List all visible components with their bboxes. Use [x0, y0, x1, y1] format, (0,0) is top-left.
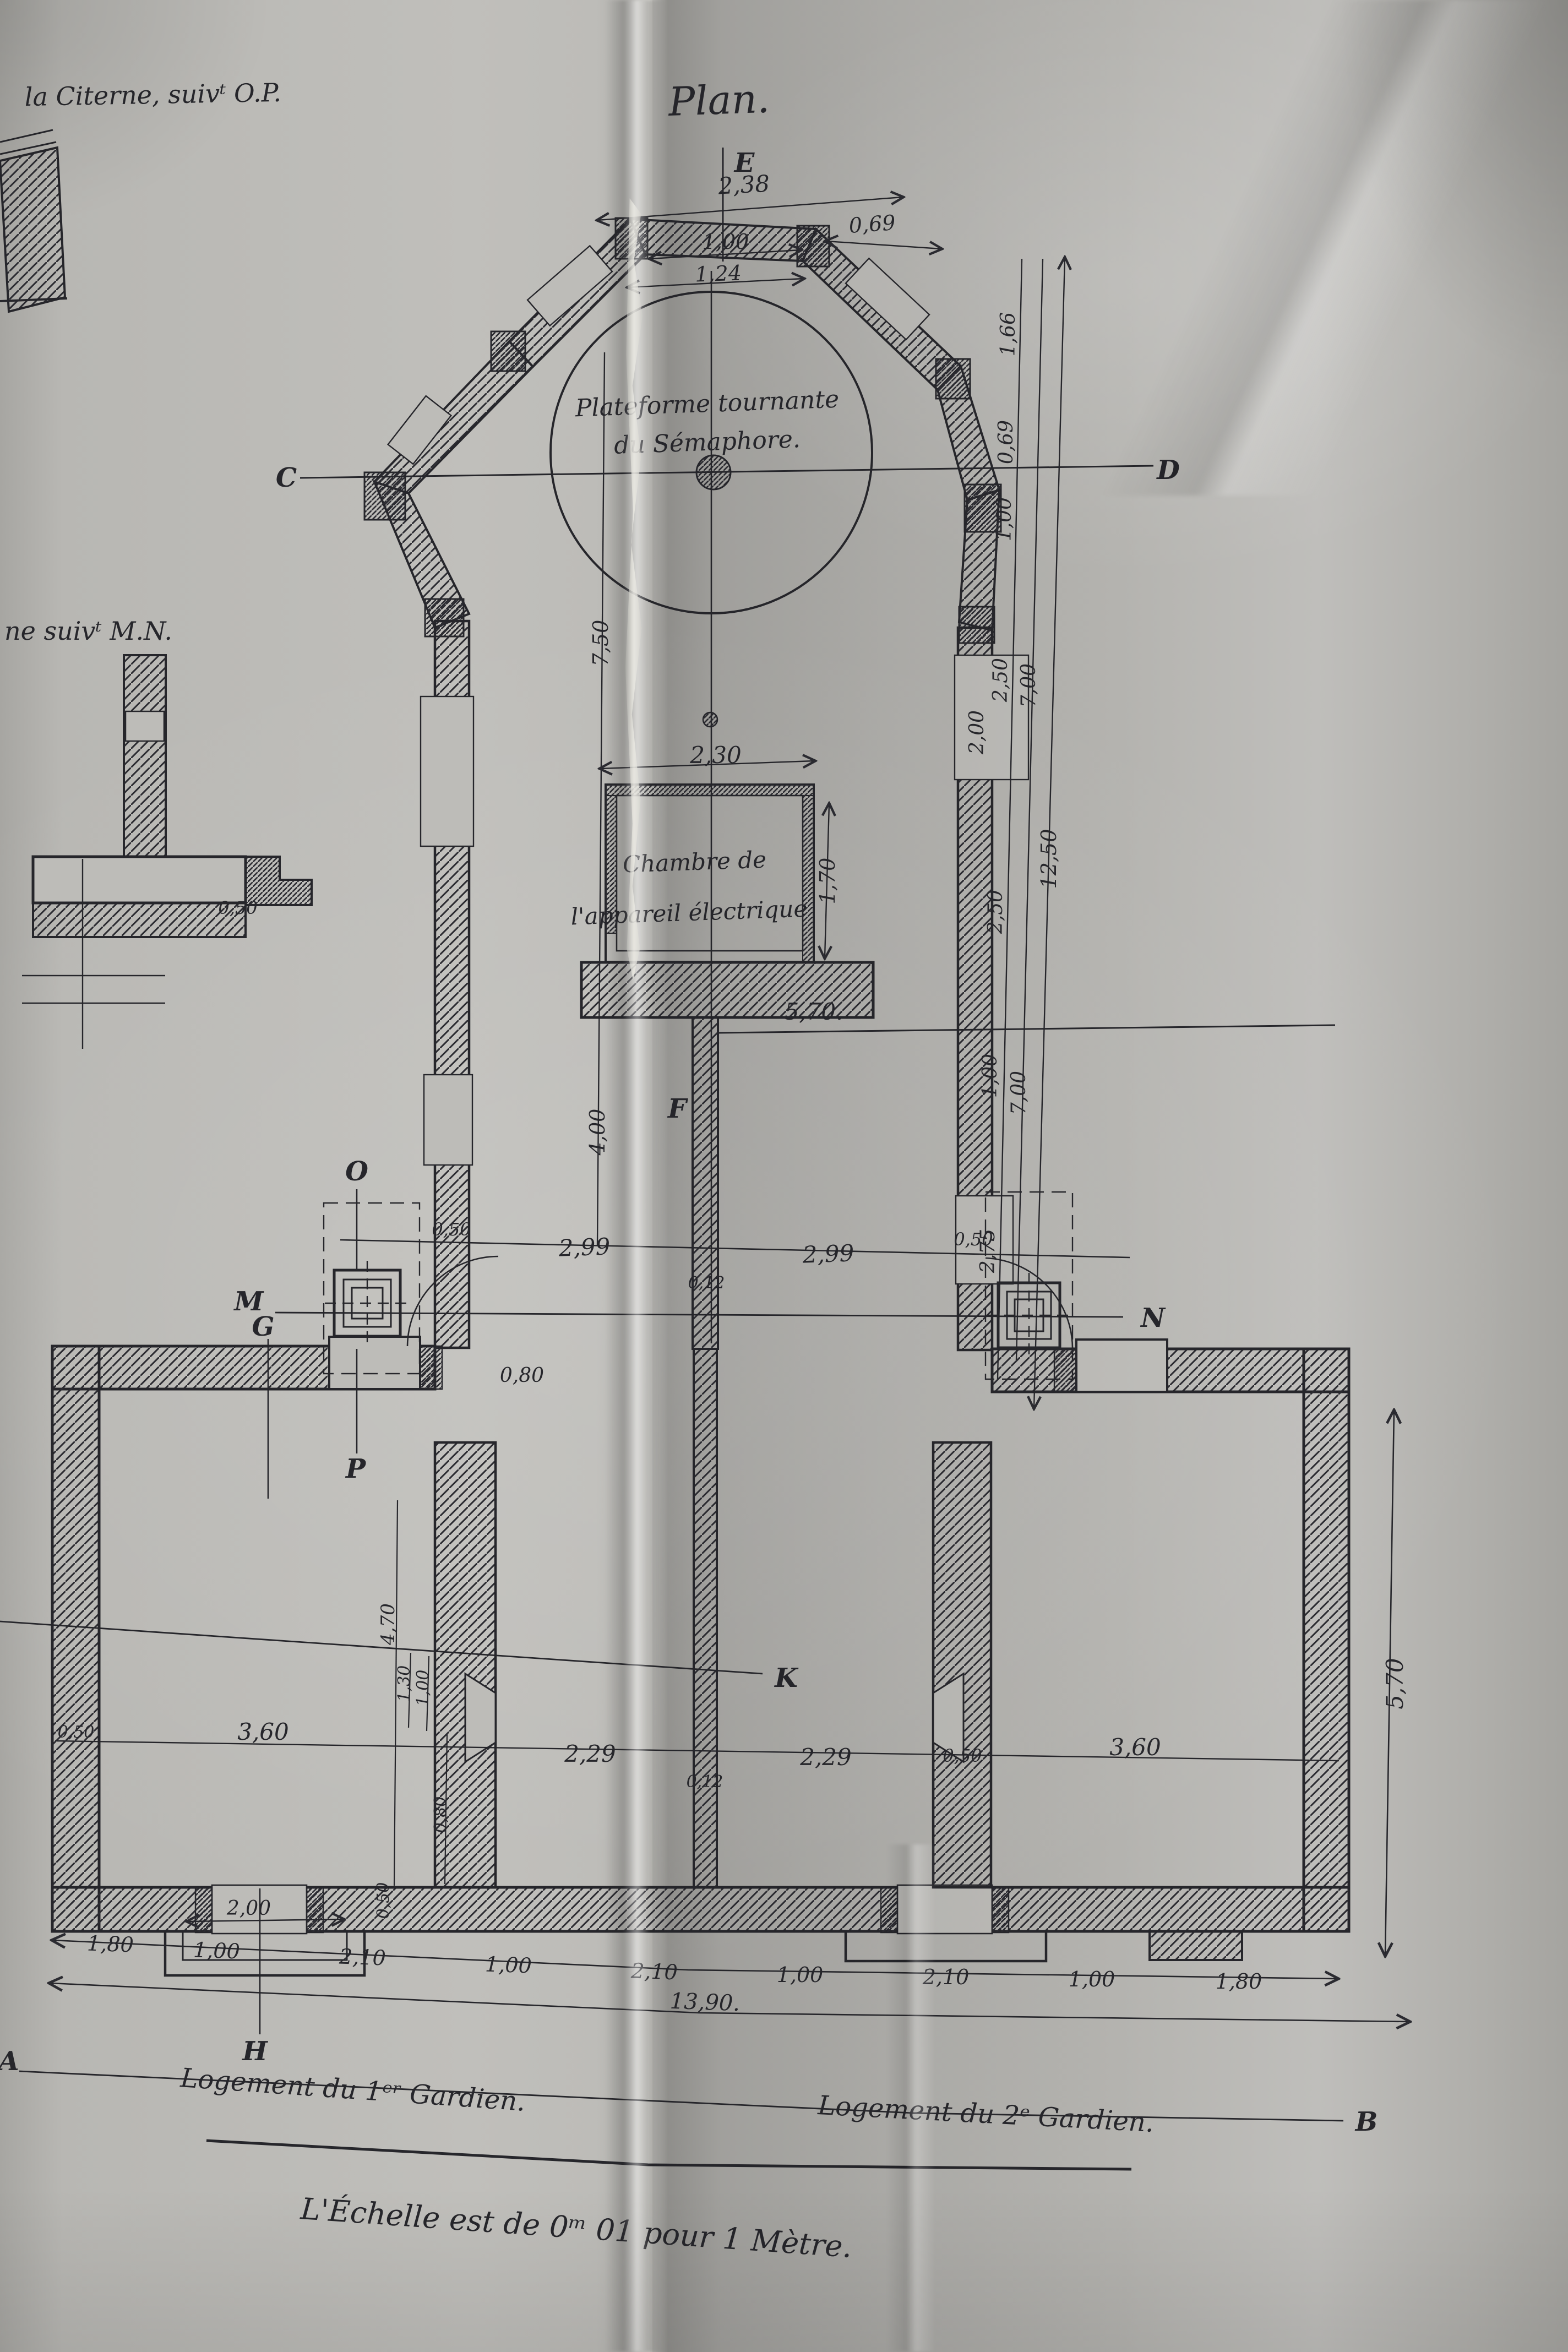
spine-wall-upper	[693, 1017, 718, 1349]
dim-chain-0: 1,80	[86, 1931, 134, 1957]
chimney-wall-right	[933, 1442, 991, 1887]
dim-chain-3: 1,00	[484, 1952, 532, 1978]
lodging-left-label: Logement du 1ᵉʳ Gardien.	[179, 2062, 526, 2117]
dim-row2-229l: 2,29	[564, 1740, 616, 1767]
dim-chain-6: 2,10	[922, 1965, 970, 1989]
axis-letter-k: K	[774, 1663, 799, 1694]
porch-center	[846, 1931, 1046, 1961]
scale-note: L'Échelle est de 0ᵐ 01 pour 1 Mètre.	[299, 2191, 853, 2264]
dim-chamber-h: 1,70	[815, 858, 840, 905]
dim-row1-050l: 0,50	[432, 1219, 471, 1240]
axis-letter-a: A	[0, 2046, 19, 2077]
dim-row1-012: 0,12	[688, 1273, 725, 1293]
photographed-plan-sheet: E C D F K M N O G P H A B la Citerne, su…	[0, 0, 1568, 2352]
dim-spine-570: 5,70.	[785, 998, 843, 1025]
sheet-title: Plan.	[667, 75, 770, 125]
dim-porch-200: 2,00	[226, 1897, 271, 1920]
axis-letter-o: O	[345, 1156, 368, 1187]
dim-r700b: 7,00	[1008, 1071, 1030, 1115]
dim-row2-050l: 0,50	[58, 1723, 95, 1742]
axis-letter-p: P	[345, 1453, 367, 1484]
dim-r100b: 1,00	[979, 1054, 1001, 1098]
axis-letter-g: G	[252, 1311, 275, 1342]
chamber-label-line1: Chambre de	[622, 846, 767, 878]
note-mid-left: ne suivᵗ M.N.	[4, 616, 172, 646]
scale-rule	[206, 2141, 1131, 2169]
dim-r100a: 1,00	[993, 497, 1016, 541]
axis-letter-n: N	[1140, 1303, 1166, 1333]
margin-section-fragment-top	[0, 130, 67, 312]
dim-r069: 0,69	[995, 420, 1017, 464]
axis-letter-b: B	[1354, 2106, 1378, 2137]
axis-letter-f: F	[667, 1093, 688, 1124]
dim-chamber-w: 2,30	[689, 742, 742, 769]
dim-section-050: 0,50	[218, 897, 257, 918]
dim-r166: 1,66	[997, 312, 1020, 356]
dim-bottom-total: 13,90.	[669, 1989, 741, 2016]
dim-recess-200: 2,00	[966, 710, 988, 755]
dim-r1250: 12,50	[1037, 829, 1061, 889]
note-top-left: la Citerne, suivᵗ O.P.	[24, 78, 281, 112]
dim-row2-360l: 3,60	[237, 1718, 289, 1745]
dim-chim-080: 0,80	[431, 1796, 450, 1833]
dim-row2-012: 0,12	[687, 1772, 723, 1792]
dim-chain-1: 1,00	[193, 1938, 240, 1964]
axis-letter-h: H	[241, 2036, 268, 2067]
axis-letter-c: C	[276, 462, 297, 493]
margin-section-fragment-mid	[22, 655, 312, 1049]
dim-chim-100: 1,00	[413, 1670, 433, 1707]
dim-chain-8: 1,80	[1216, 1969, 1262, 1994]
dim-row2-360r: 3,60	[1109, 1734, 1161, 1761]
platform-label-line2: du Sémaphore.	[613, 425, 801, 460]
dim-row1-299r: 2,99	[802, 1239, 854, 1268]
dim-porch-050: 0,50	[374, 1882, 393, 1919]
dim-chain-7: 1,00	[1069, 1967, 1115, 1991]
jamb-wedge-left	[420, 1346, 442, 1389]
dim-row2-050r: 0,50	[943, 1745, 982, 1766]
axis-letter-d: D	[1156, 455, 1180, 486]
dim-row1-299l: 2,99	[558, 1233, 611, 1261]
dim-chain-5: 1,00	[777, 1963, 824, 1987]
porch-right-pilaster	[1150, 1931, 1242, 1960]
dim-row2-229r: 2,29	[799, 1744, 852, 1771]
dim-top-inner: 1,24	[694, 261, 742, 287]
dim-l400: 4,00	[585, 1109, 609, 1156]
dim-chim-470: 4,70	[377, 1603, 399, 1646]
dim-top-right: 0,69	[848, 210, 896, 238]
lodging-right-label: Logement du 2ᵉ Gardien.	[816, 2090, 1155, 2138]
dim-right-570: 5,70	[1381, 1658, 1408, 1709]
dim-chim-130: 1,30	[395, 1665, 414, 1702]
small-post-dot	[703, 712, 717, 727]
dim-row1-050r: 0,50	[954, 1229, 993, 1250]
platform-label-line1: Plateforme tournante	[574, 385, 840, 423]
tower-head-walls	[374, 219, 999, 630]
dim-chain-2: 2,10	[338, 1945, 386, 1970]
dim-l750: 7,50	[589, 620, 613, 667]
dim-r250a: 2,50	[989, 658, 1012, 703]
dim-r700a: 7,00	[1017, 663, 1040, 707]
dim-top-mid: 1,00	[703, 230, 749, 254]
dim-chain-4: 2,10	[630, 1959, 678, 1985]
dim-r250b: 2,50	[984, 890, 1007, 934]
dim-top-total: 2,38	[717, 170, 770, 200]
plan-drawing: E C D F K M N O G P H A B la Citerne, su…	[0, 0, 1568, 2352]
dim-door-080: 0,80	[500, 1364, 544, 1387]
spine-wall-lower	[694, 1349, 717, 1887]
